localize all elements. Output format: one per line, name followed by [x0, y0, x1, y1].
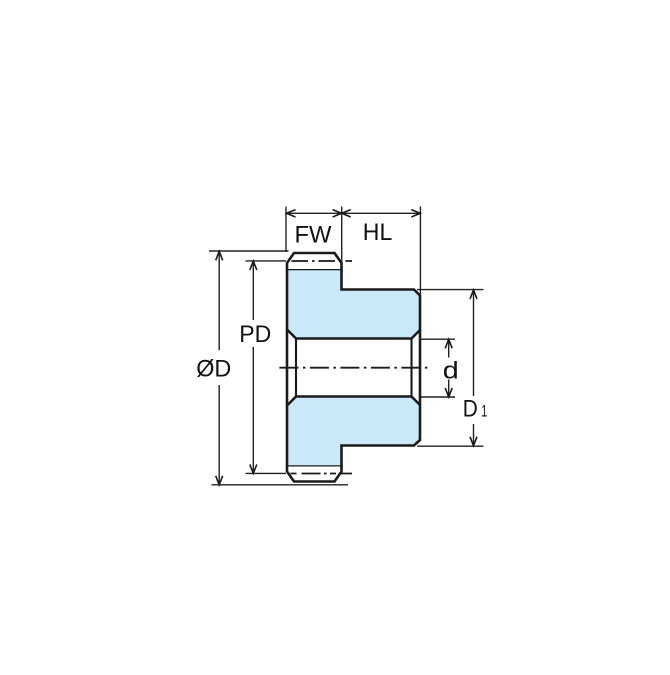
svg-text:FW: FW [295, 221, 332, 248]
svg-text:1: 1 [481, 402, 487, 421]
svg-text:D: D [463, 396, 478, 423]
svg-text:d: d [443, 357, 459, 384]
svg-text:ØD: ØD [196, 355, 231, 382]
svg-text:PD: PD [239, 321, 271, 348]
svg-text:HL: HL [363, 219, 393, 246]
